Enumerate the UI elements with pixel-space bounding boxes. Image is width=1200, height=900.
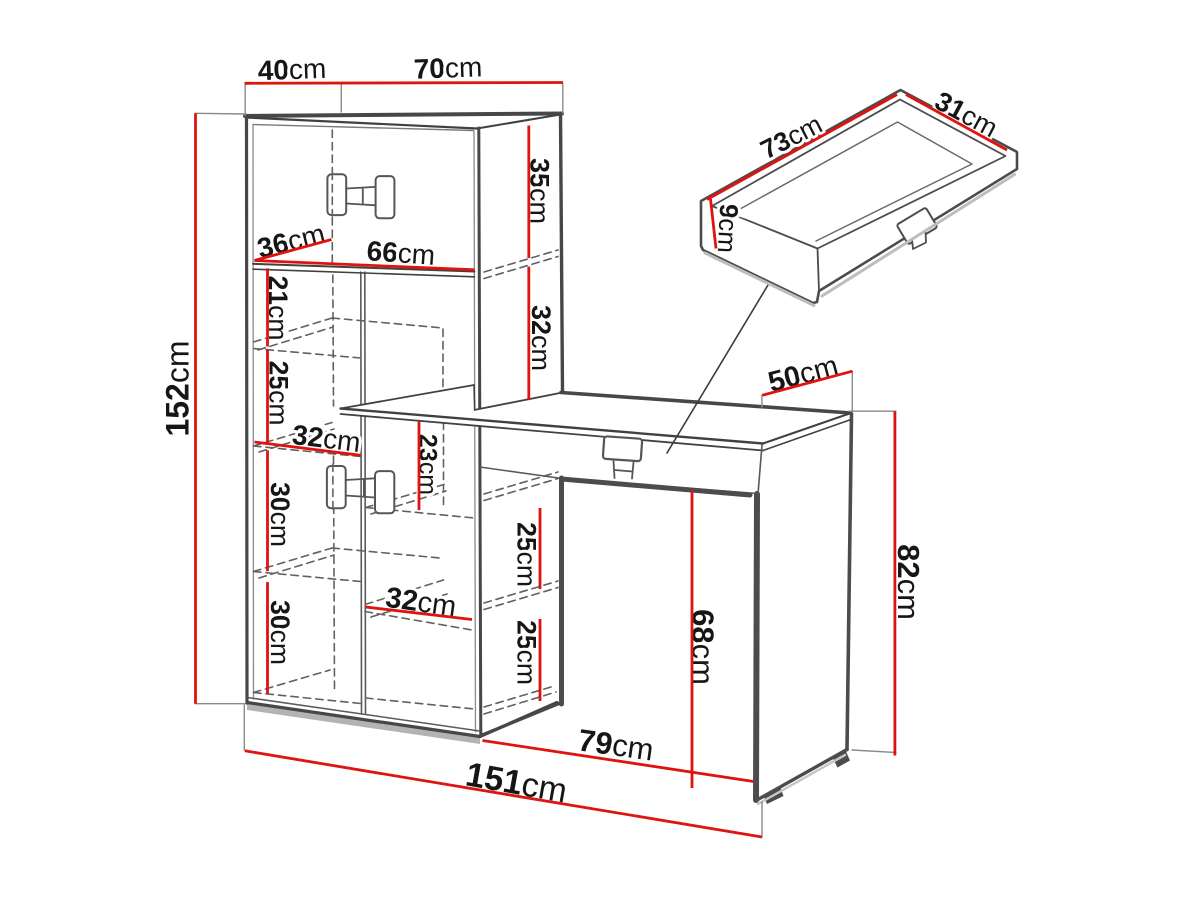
svg-text:40cm: 40cm — [257, 53, 327, 86]
svg-text:70cm: 70cm — [413, 51, 483, 84]
svg-text:30cm: 30cm — [265, 600, 295, 665]
svg-text:25cm: 25cm — [512, 620, 542, 685]
svg-text:152cm: 152cm — [160, 340, 196, 436]
svg-text:25cm: 25cm — [512, 522, 542, 587]
svg-text:30cm: 30cm — [265, 482, 295, 547]
svg-text:32cm: 32cm — [526, 305, 556, 371]
